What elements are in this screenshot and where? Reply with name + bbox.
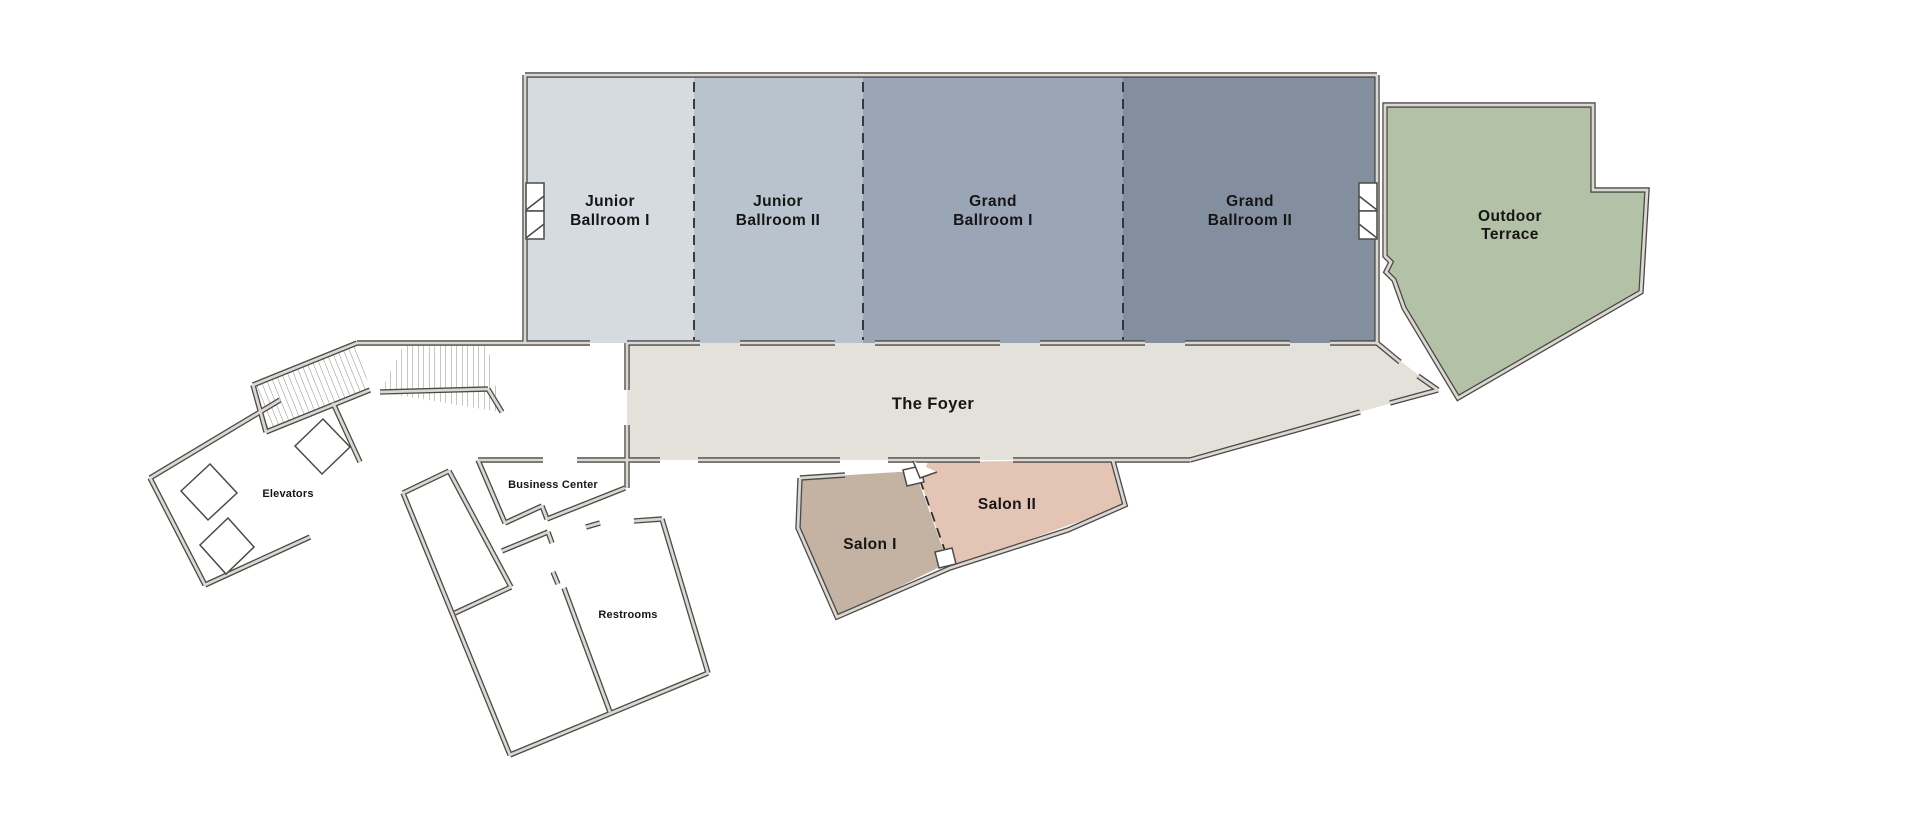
stair-run-diagonal	[253, 343, 370, 432]
floor-plan-svg: JuniorBallroom I JuniorBallroom II Grand…	[0, 0, 1920, 835]
label-outdoor-terrace: OutdoorTerrace	[1478, 208, 1542, 243]
stair-run-vertical	[380, 345, 500, 412]
double-door-east-icon	[1359, 183, 1377, 239]
room-outdoor-terrace[interactable]	[1385, 105, 1647, 398]
floor-plan-page: JuniorBallroom I JuniorBallroom II Grand…	[0, 0, 1920, 835]
double-door-west-icon	[526, 183, 544, 239]
label-salon-2: Salon II	[978, 496, 1036, 513]
label-salon-1: Salon I	[843, 536, 897, 553]
salon-divider-jamb-icon	[935, 548, 956, 568]
label-restrooms: Restrooms	[598, 609, 657, 621]
label-elevators: Elevators	[262, 488, 313, 500]
elevator-car-icon	[181, 464, 237, 520]
label-business-center: Business Center	[508, 479, 598, 491]
room-foyer[interactable]	[627, 343, 1438, 460]
label-foyer: The Foyer	[892, 395, 975, 413]
